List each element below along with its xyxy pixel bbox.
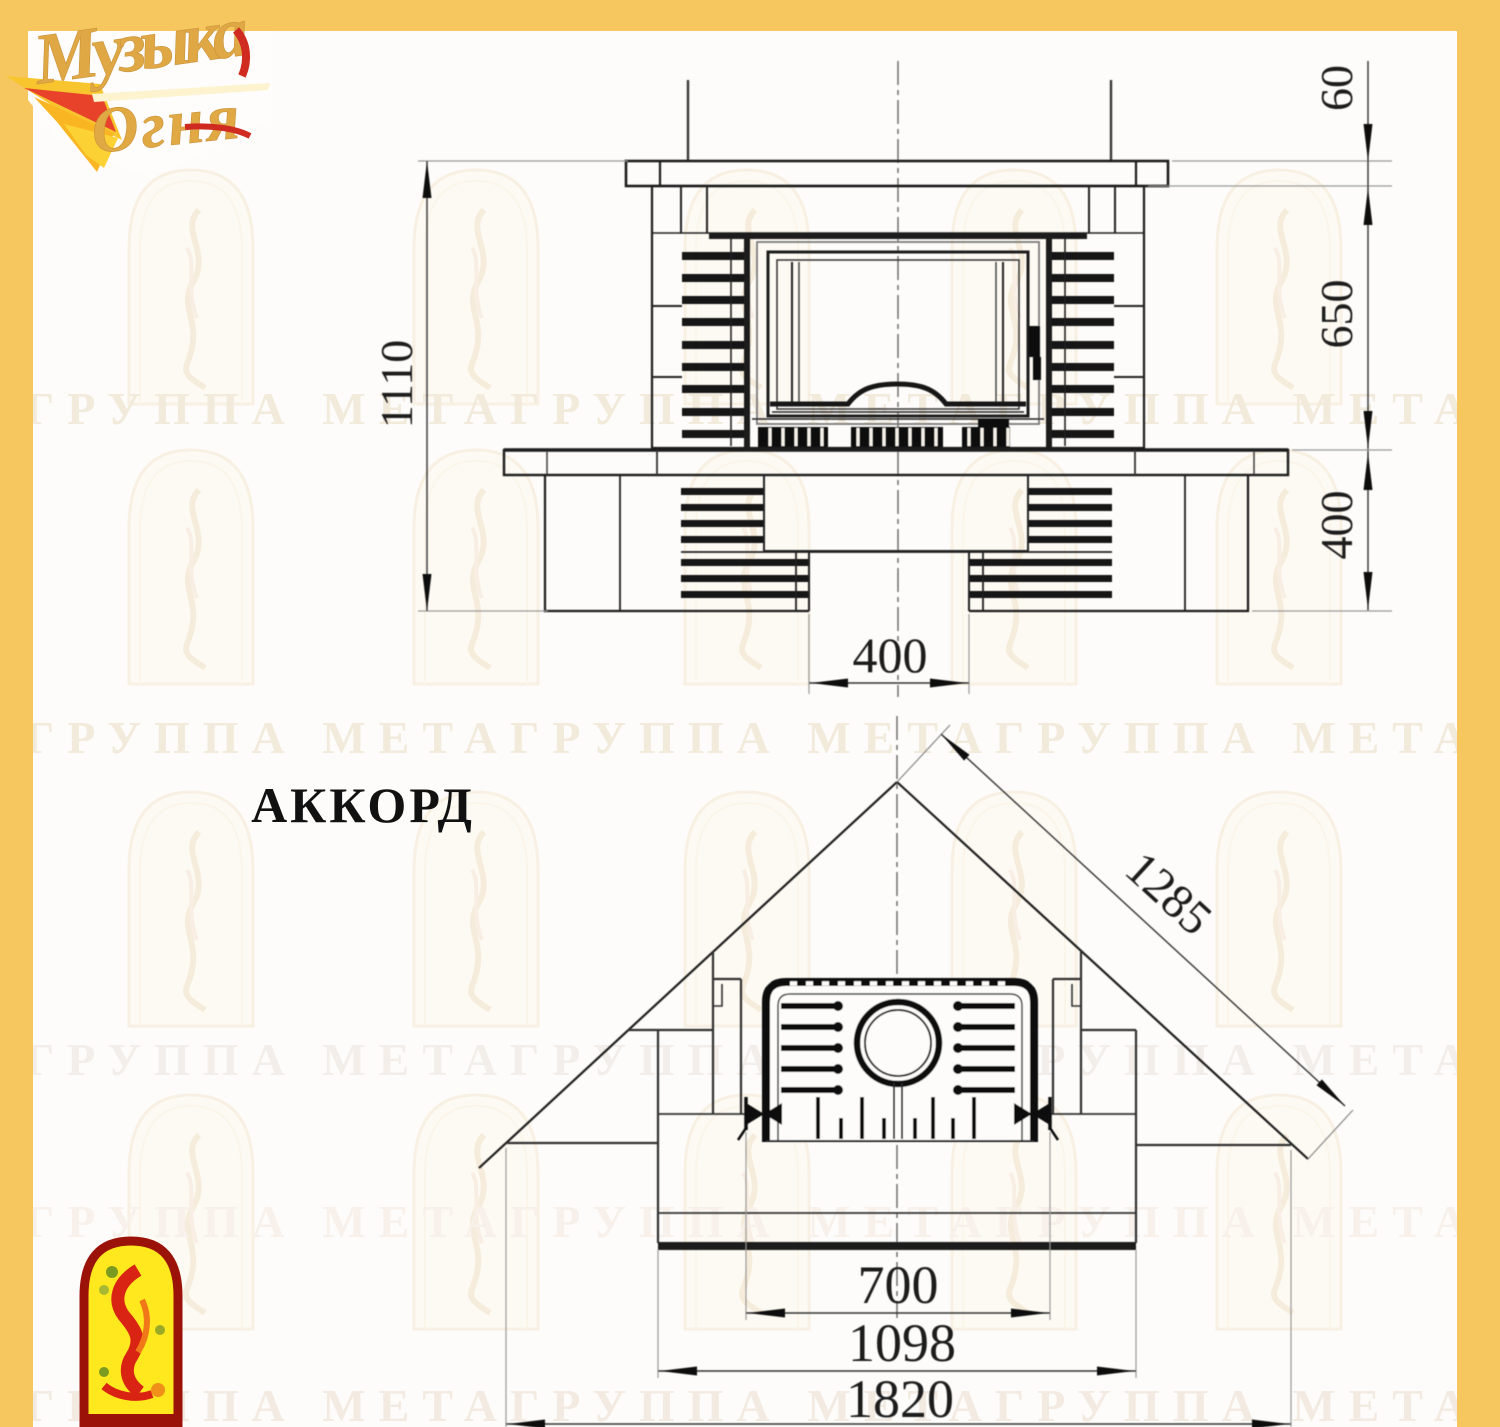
svg-text:ГРУППА МЕТАГРУППА МЕТАГРУППА М: ГРУППА МЕТАГРУППА МЕТАГРУППА МЕТА xyxy=(25,1196,1480,1247)
svg-text:ГРУППА МЕТАГРУППА МЕТАГРУППА М: ГРУППА МЕТАГРУППА МЕТАГРУППА МЕТА xyxy=(25,1380,1480,1427)
svg-text:650: 650 xyxy=(1311,280,1362,349)
svg-text:АККОРД: АККОРД xyxy=(251,777,475,833)
svg-text:1110: 1110 xyxy=(371,340,422,429)
svg-text:1820: 1820 xyxy=(846,1369,954,1427)
svg-text:400: 400 xyxy=(1311,491,1362,560)
svg-text:700: 700 xyxy=(858,1255,939,1315)
svg-text:ГРУППА МЕТАГРУППА МЕТАГРУППА М: ГРУППА МЕТАГРУППА МЕТАГРУППА МЕТА xyxy=(25,383,1480,434)
svg-text:60: 60 xyxy=(1311,65,1362,111)
svg-text:400: 400 xyxy=(853,627,928,683)
svg-text:ГРУППА МЕТАГРУППА МЕТАГРУППА М: ГРУППА МЕТАГРУППА МЕТАГРУППА МЕТА xyxy=(25,1034,1480,1085)
svg-text:1098: 1098 xyxy=(848,1313,956,1373)
svg-text:ГРУППА МЕТАГРУППА МЕТАГРУППА М: ГРУППА МЕТАГРУППА МЕТАГРУППА МЕТА xyxy=(25,712,1480,763)
